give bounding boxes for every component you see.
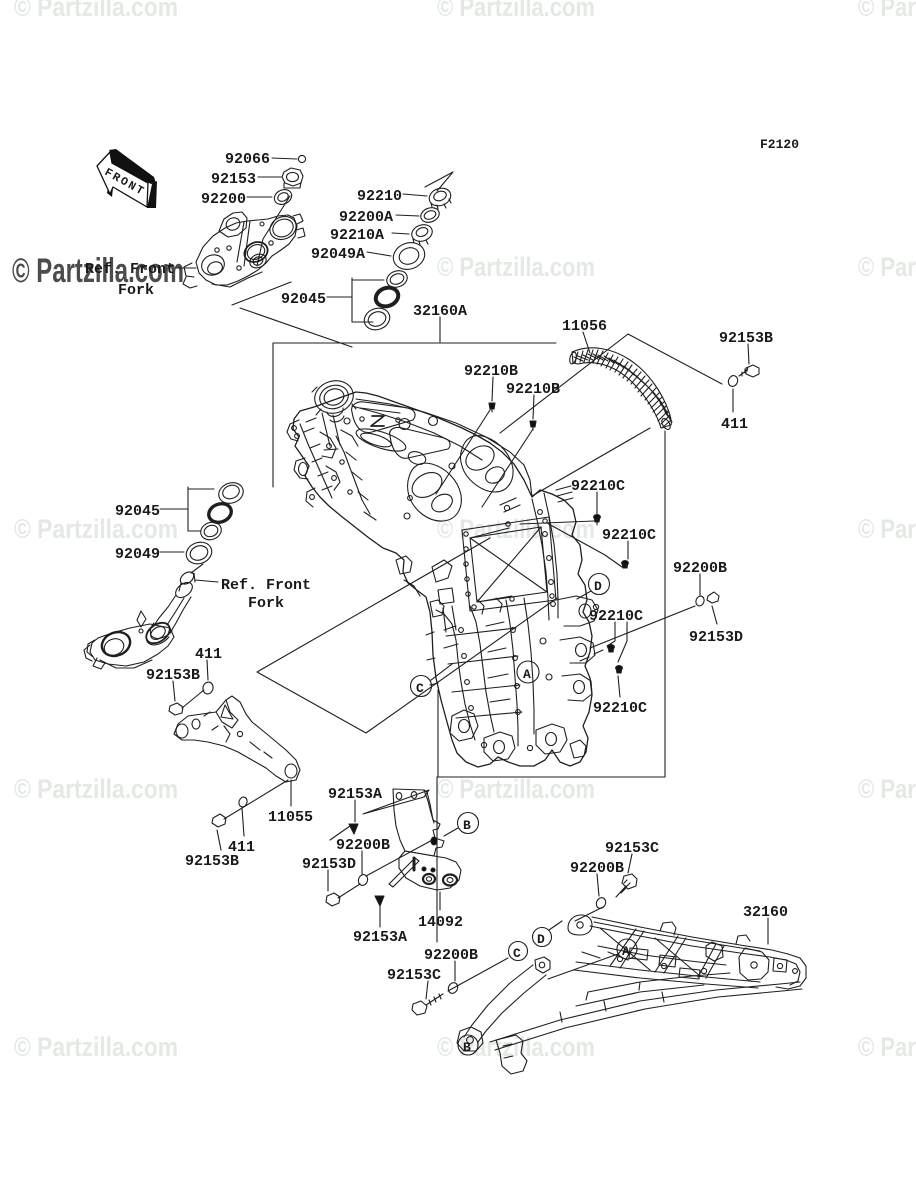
svg-text:© Partzilla.com: © Partzilla.com xyxy=(14,1032,178,1062)
svg-text:© Partzilla.com: © Partzilla.com xyxy=(437,774,595,804)
svg-text:92210C: 92210C xyxy=(593,700,647,717)
svg-text:92045: 92045 xyxy=(281,291,326,308)
svg-text:32160: 32160 xyxy=(743,904,788,921)
svg-text:© Partzilla.com: © Partzilla.com xyxy=(437,0,595,22)
svg-text:F2120: F2120 xyxy=(760,137,799,152)
svg-text:92066: 92066 xyxy=(225,151,270,168)
svg-text:B: B xyxy=(463,818,471,833)
svg-text:92210B: 92210B xyxy=(506,381,560,398)
svg-text:C: C xyxy=(513,946,521,961)
svg-text:A: A xyxy=(622,944,630,959)
svg-text:92210: 92210 xyxy=(357,188,402,205)
svg-text:Ref. Front: Ref. Front xyxy=(221,577,311,594)
svg-text:D: D xyxy=(537,932,545,947)
svg-text:92045: 92045 xyxy=(115,503,160,520)
svg-text:92200A: 92200A xyxy=(339,209,393,226)
svg-text:Fork: Fork xyxy=(248,595,284,612)
svg-text:92049: 92049 xyxy=(115,546,160,563)
svg-text:© Partzilla.com: © Partzilla.com xyxy=(14,774,178,804)
svg-text:92200B: 92200B xyxy=(336,837,390,854)
svg-text:© Partzilla.com: © Partzilla.com xyxy=(437,514,595,544)
svg-text:411: 411 xyxy=(195,646,222,663)
svg-text:92210C: 92210C xyxy=(589,608,643,625)
svg-text:411: 411 xyxy=(721,416,748,433)
svg-text:B: B xyxy=(463,1040,471,1055)
svg-text:© Partzilla.com: © Partzilla.com xyxy=(858,774,916,804)
svg-text:11055: 11055 xyxy=(268,809,313,826)
svg-text:© Partzilla.com: © Partzilla.com xyxy=(437,252,595,282)
svg-text:Ref. Front: Ref. Front xyxy=(85,261,175,278)
svg-text:92200: 92200 xyxy=(201,191,246,208)
svg-text:92210B: 92210B xyxy=(464,363,518,380)
svg-text:14092: 14092 xyxy=(418,914,463,931)
svg-text:© Partzilla.com: © Partzilla.com xyxy=(858,514,916,544)
svg-text:92153B: 92153B xyxy=(719,330,773,347)
svg-text:C: C xyxy=(416,681,424,696)
svg-text:92210C: 92210C xyxy=(602,527,656,544)
svg-text:11056: 11056 xyxy=(562,318,607,335)
svg-text:© Partzilla.com: © Partzilla.com xyxy=(858,252,916,282)
svg-text:92153D: 92153D xyxy=(689,629,743,646)
svg-text:A: A xyxy=(523,667,531,682)
svg-text:92200B: 92200B xyxy=(424,947,478,964)
svg-text:92153A: 92153A xyxy=(353,929,407,946)
svg-text:Fork: Fork xyxy=(118,282,154,299)
svg-text:92153C: 92153C xyxy=(387,967,441,984)
svg-text:92049A: 92049A xyxy=(311,246,365,263)
svg-text:© Partzilla.com: © Partzilla.com xyxy=(858,0,916,22)
svg-text:92153D: 92153D xyxy=(302,856,356,873)
svg-text:© Partzilla.com: © Partzilla.com xyxy=(14,0,178,22)
svg-text:92153: 92153 xyxy=(211,171,256,188)
svg-text:D: D xyxy=(594,579,602,594)
svg-text:92153B: 92153B xyxy=(185,853,239,870)
svg-text:92210A: 92210A xyxy=(330,227,384,244)
svg-text:© Partzilla.com: © Partzilla.com xyxy=(858,1032,916,1062)
svg-text:92210C: 92210C xyxy=(571,478,625,495)
